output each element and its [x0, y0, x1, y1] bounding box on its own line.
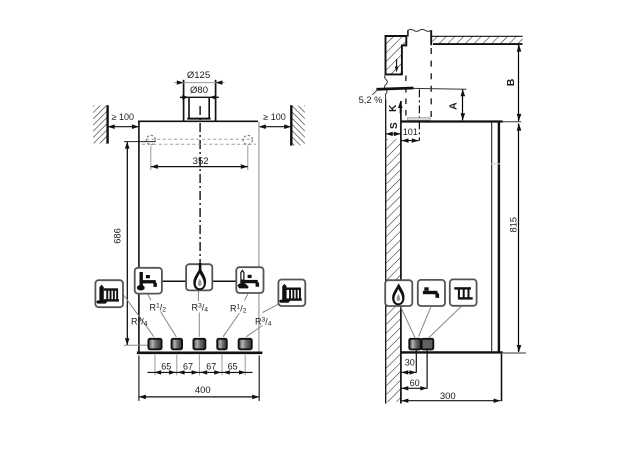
- svg-text:686: 686: [113, 228, 123, 244]
- svg-text:S: S: [389, 122, 400, 129]
- svg-text:K: K: [388, 104, 399, 112]
- svg-text:Ø125: Ø125: [187, 70, 210, 81]
- svg-text:≥ 100: ≥ 100: [263, 112, 285, 122]
- svg-text:65: 65: [228, 361, 238, 371]
- svg-text:60: 60: [410, 378, 420, 388]
- svg-text:≥ 100: ≥ 100: [112, 112, 134, 122]
- svg-text:352: 352: [193, 156, 209, 167]
- svg-text:B: B: [505, 78, 517, 86]
- svg-text:67: 67: [183, 361, 193, 371]
- svg-text:65: 65: [161, 361, 171, 371]
- svg-text:67: 67: [206, 361, 216, 371]
- svg-text:101: 101: [403, 127, 418, 137]
- svg-text:Ø80: Ø80: [190, 85, 208, 96]
- svg-text:A: A: [447, 102, 459, 110]
- svg-text:5,2 %: 5,2 %: [359, 95, 383, 105]
- svg-text:815: 815: [508, 217, 518, 233]
- svg-text:400: 400: [195, 385, 211, 396]
- svg-text:30: 30: [405, 358, 415, 368]
